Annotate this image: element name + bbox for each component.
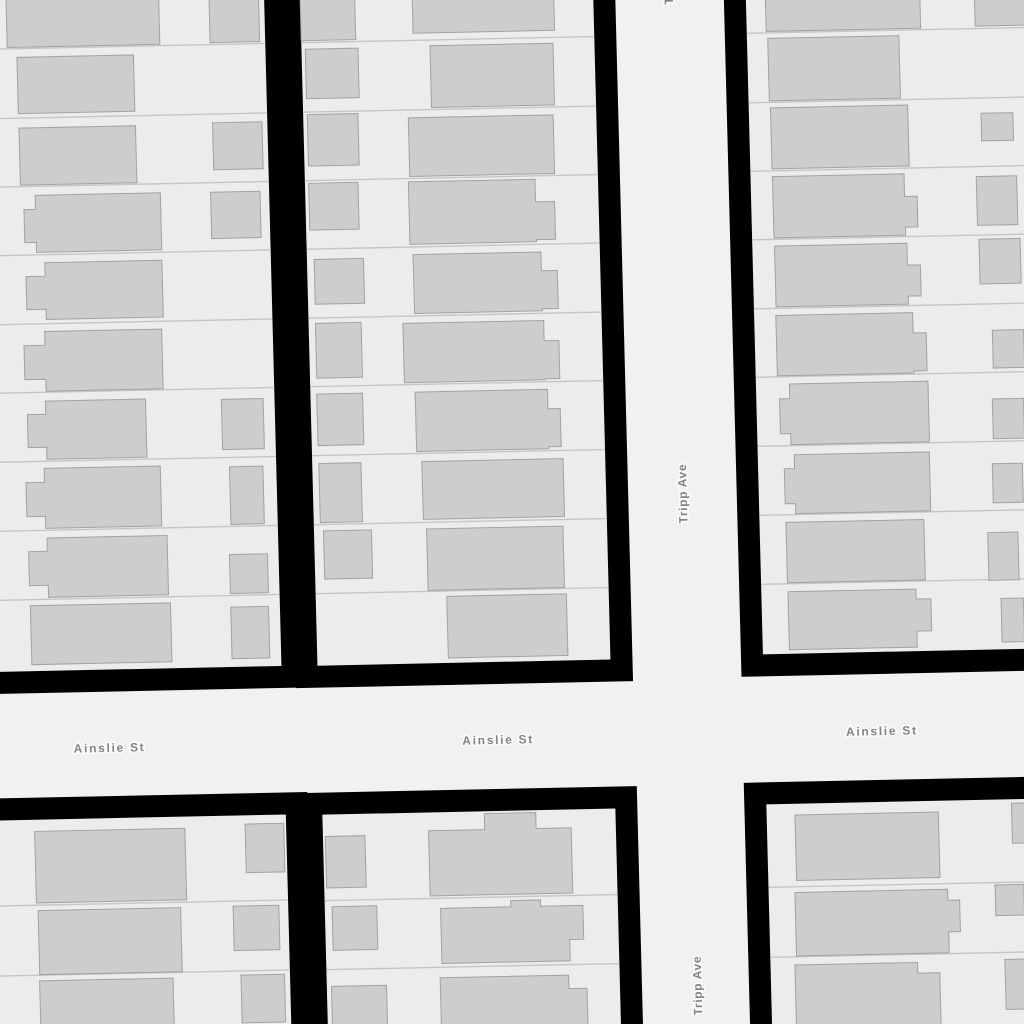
svg-text:Tripp Ave: Tripp Ave [675, 464, 691, 524]
svg-text:Tripp Ave: Tripp Ave [660, 0, 676, 5]
svg-text:Ainslie St: Ainslie St [846, 723, 916, 738]
svg-text:Ainslie St: Ainslie St [74, 740, 144, 755]
svg-text:Tripp Ave: Tripp Ave [690, 956, 706, 1016]
svg-text:Ainslie St: Ainslie St [462, 732, 532, 747]
